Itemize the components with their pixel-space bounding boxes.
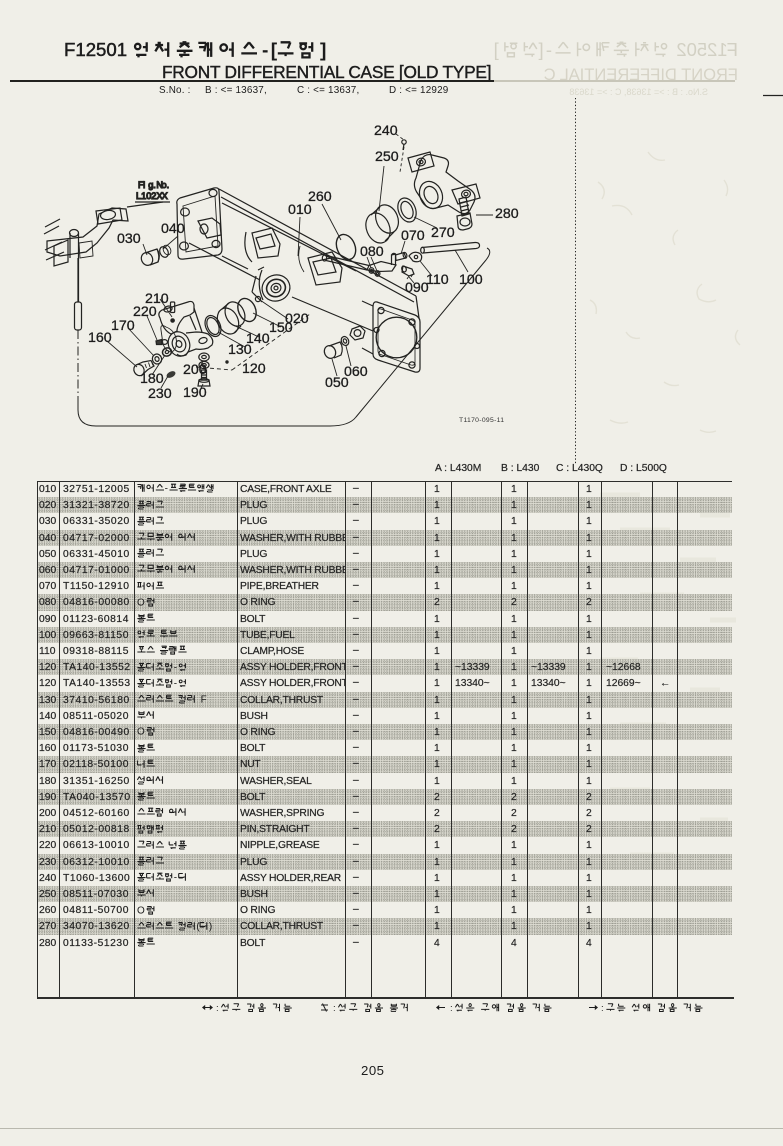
svg-text::: : bbox=[601, 1003, 604, 1014]
svg-text::: : bbox=[216, 1003, 219, 1014]
svg-text::: : bbox=[450, 1003, 453, 1014]
svg-text::: : bbox=[333, 1003, 336, 1014]
